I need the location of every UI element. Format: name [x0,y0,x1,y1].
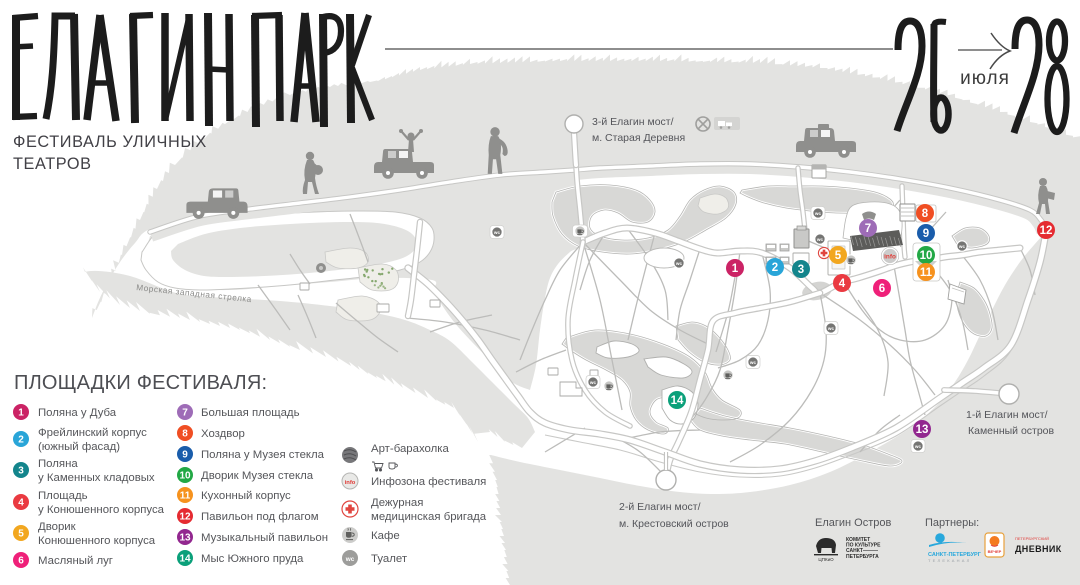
svg-text:Кафе: Кафе [371,530,400,542]
svg-text:10: 10 [920,250,933,262]
svg-text:4: 4 [839,278,846,290]
svg-text:Поляна у Музея стекла: Поляна у Музея стекла [201,449,325,461]
svg-text:wc: wc [914,444,922,449]
svg-text:wc: wc [675,261,683,266]
svg-text:7: 7 [865,223,871,235]
svg-text:медицинская бригада: медицинская бригада [371,511,487,523]
svg-text:ТЕЛЕКАНАЛ: ТЕЛЕКАНАЛ [928,558,971,563]
svg-text:wc: wc [814,211,822,216]
svg-text:9: 9 [182,450,188,461]
svg-text:3: 3 [18,466,24,477]
svg-text:13: 13 [916,424,929,436]
svg-text:Туалет: Туалет [371,553,408,565]
svg-text:ДНЕВНИК: ДНЕВНИК [1015,544,1062,554]
svg-text:wc: wc [589,380,597,385]
svg-text:м. Крестовский остров: м. Крестовский остров [619,518,729,530]
svg-text:9: 9 [923,228,929,240]
svg-text:Мыс Южного пруда: Мыс Южного пруда [201,553,304,565]
svg-text:Каменный остров: Каменный остров [968,425,1055,437]
svg-text:Поляна у Дуба: Поляна у Дуба [38,407,117,419]
svg-text:Хоздвор: Хоздвор [201,428,245,440]
svg-text:wc: wc [493,230,501,235]
svg-text:ВЕЧЕР: ВЕЧЕР [988,549,1002,554]
svg-text:Конюшенного корпуса: Конюшенного корпуса [38,535,156,547]
svg-text:11: 11 [180,491,191,502]
svg-text:7: 7 [182,408,188,419]
svg-text:12: 12 [179,512,191,523]
svg-text:ПЛОЩАДКИ ФЕСТИВАЛЯ:: ПЛОЩАДКИ ФЕСТИВАЛЯ: [14,372,267,394]
svg-text:Кухонный корпус: Кухонный корпус [201,490,291,502]
svg-text:5: 5 [835,250,842,262]
svg-text:Площадь: Площадь [38,490,88,502]
svg-text:Елагин Остров: Елагин Остров [815,517,891,529]
svg-text:3: 3 [798,264,804,276]
svg-text:6: 6 [18,556,24,567]
svg-text:wc: wc [827,326,835,331]
svg-text:info: info [884,253,896,260]
svg-text:ЦПКиО: ЦПКиО [818,557,834,562]
svg-text:ФЕСТИВАЛЬ УЛИЧНЫХ: ФЕСТИВАЛЬ УЛИЧНЫХ [13,133,207,151]
svg-text:wc: wc [958,244,966,249]
svg-text:3-й Елагин мост/: 3-й Елагин мост/ [592,116,674,128]
svg-text:Поляна: Поляна [38,458,78,470]
svg-text:Дворик Музея стекла: Дворик Музея стекла [201,470,314,482]
svg-text:4: 4 [18,498,24,509]
svg-text:1: 1 [732,263,739,275]
svg-text:Партнеры:: Партнеры: [925,517,979,529]
svg-text:Большая площадь: Большая площадь [201,407,300,419]
svg-text:Дворик: Дворик [38,521,77,533]
svg-text:у Каменных кладовых: у Каменных кладовых [38,472,155,484]
svg-text:14: 14 [179,554,191,565]
svg-text:м. Старая Деревня: м. Старая Деревня [592,132,685,144]
svg-text:14: 14 [671,395,684,407]
svg-text:5: 5 [18,529,24,540]
svg-text:2: 2 [772,262,778,274]
svg-text:июля: июля [960,68,1010,89]
svg-text:8: 8 [182,429,188,440]
svg-text:1-й Елагин мост/: 1-й Елагин мост/ [966,409,1048,421]
svg-text:ПЕТЕРБУРГСКИЙ: ПЕТЕРБУРГСКИЙ [1015,536,1049,541]
svg-text:Павильон под флагом: Павильон под флагом [201,511,319,523]
svg-text:Инфозона фестиваля: Инфозона фестиваля [371,476,486,488]
svg-text:Музыкальный павильон: Музыкальный павильон [201,532,328,544]
svg-text:Масляный луг: Масляный луг [38,555,113,567]
svg-text:6: 6 [879,283,885,295]
svg-text:2-й Елагин мост/: 2-й Елагин мост/ [619,501,701,513]
svg-text:(южный фасад): (южный фасад) [38,441,120,453]
svg-text:Арт-барахолка: Арт-барахолка [371,443,449,455]
svg-text:ПЕТЕРБУРГА: ПЕТЕРБУРГА [846,554,879,560]
svg-text:8: 8 [922,208,929,220]
svg-text:Фрейлинский корпус: Фрейлинский корпус [38,427,147,439]
svg-text:у Конюшенного корпуса: у Конюшенного корпуса [38,504,165,516]
svg-text:13: 13 [179,533,191,544]
svg-text:1: 1 [18,408,24,419]
svg-text:11: 11 [920,267,933,279]
svg-text:wc: wc [345,556,355,563]
svg-text:12: 12 [1040,225,1053,237]
svg-text:Дежурная: Дежурная [371,497,423,509]
svg-text:10: 10 [179,471,191,482]
svg-text:info: info [345,480,356,486]
svg-text:wc: wc [816,237,824,242]
svg-text:wc: wc [749,360,757,365]
svg-text:2: 2 [18,435,24,446]
svg-text:ТЕАТРОВ: ТЕАТРОВ [13,155,92,173]
